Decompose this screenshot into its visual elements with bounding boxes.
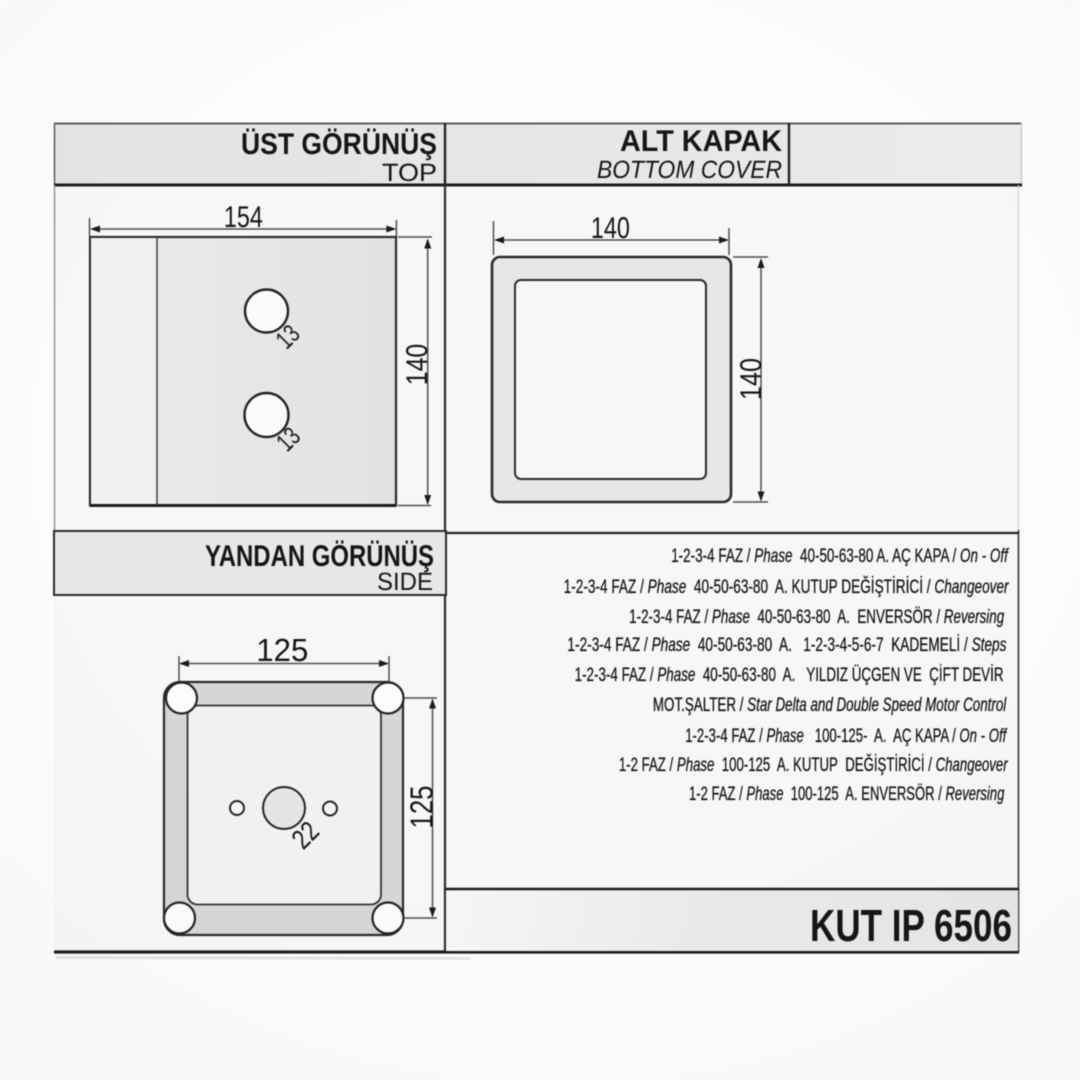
- svg-text:SIDE: SIDE: [377, 568, 433, 596]
- svg-text:TOP: TOP: [382, 159, 437, 187]
- svg-text:140: 140: [401, 344, 434, 386]
- svg-text:ALT KAPAK: ALT KAPAK: [620, 125, 782, 158]
- svg-text:154: 154: [224, 201, 263, 234]
- svg-text:125: 125: [404, 786, 440, 829]
- svg-text:BOTTOM COVER: BOTTOM COVER: [597, 156, 782, 184]
- svg-text:125: 125: [256, 632, 308, 668]
- svg-text:KUT IP 6506: KUT IP 6506: [810, 900, 1012, 951]
- svg-text:140: 140: [591, 212, 630, 245]
- svg-text:140: 140: [735, 358, 768, 400]
- svg-text:ÜST GÖRÜNÜŞ: ÜST GÖRÜNÜŞ: [241, 128, 437, 161]
